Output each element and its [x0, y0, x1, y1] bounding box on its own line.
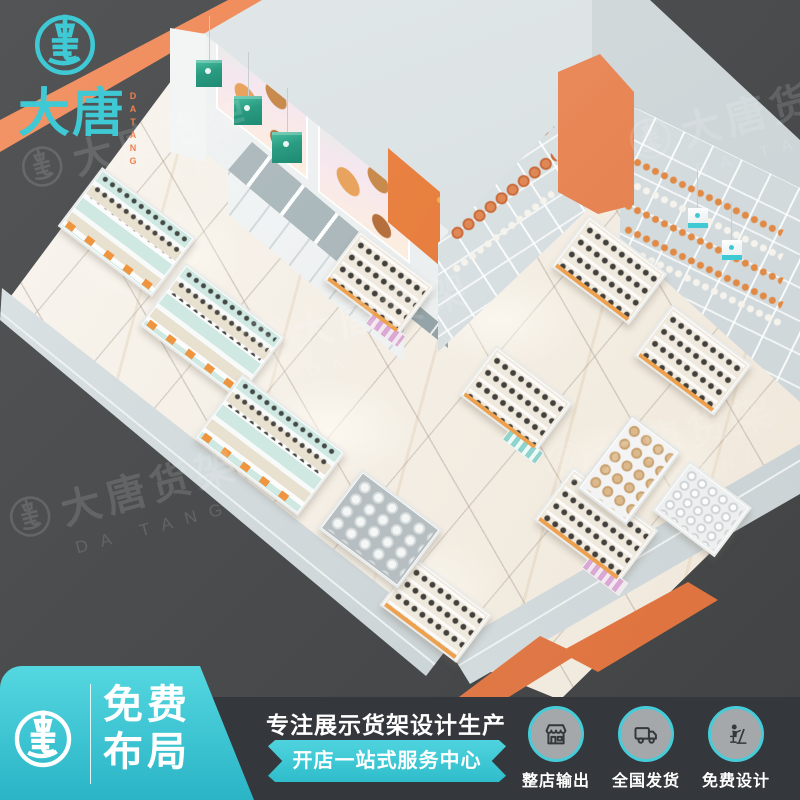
brand-name: 大唐	[18, 87, 126, 142]
hanging-sign	[272, 132, 302, 163]
badge-line1: 免费	[103, 682, 191, 729]
truck-icon	[618, 706, 674, 762]
badge-divider	[90, 684, 91, 784]
sign-rod	[731, 202, 732, 240]
brand-logo: 大唐 DATANG	[18, 12, 158, 169]
sign-rod	[697, 170, 698, 208]
feature-free-design: 免费设计	[701, 706, 771, 791]
badge-line2: 布局	[103, 729, 191, 776]
sign-rod	[248, 52, 249, 96]
footer-features: 整店输出 全国发货	[521, 706, 771, 791]
sign-rod	[287, 88, 288, 132]
hanging-sign	[722, 240, 742, 260]
sign-rod	[209, 16, 210, 60]
datang-emblem-icon	[3, 490, 57, 544]
hanging-sign	[234, 96, 262, 125]
footer-badge-panel: 免费 布局	[0, 666, 254, 800]
datang-emblem-icon	[12, 708, 74, 770]
storefront-icon	[528, 706, 584, 762]
hanging-sign	[688, 208, 708, 228]
hanging-sign	[196, 60, 222, 87]
feature-nationwide-shipping: 全国发货	[611, 706, 681, 791]
feature-label: 全国发货	[612, 767, 680, 791]
brand-latin: DATANG	[128, 91, 138, 169]
feature-whole-store-output: 整店输出	[521, 706, 591, 791]
feature-label: 免费设计	[702, 767, 770, 791]
datang-emblem-icon	[32, 12, 98, 78]
store-render-scene: 大唐货架 DA TANG 大唐货架 DA TANG 大唐货架 DA TANG 大…	[0, 0, 800, 800]
footer-tagline: 专注展示货架设计生产	[258, 706, 514, 740]
designer-icon	[708, 706, 764, 762]
footer-ribbon: 开店一站式服务中心	[268, 740, 506, 782]
feature-label: 整店输出	[522, 767, 590, 791]
